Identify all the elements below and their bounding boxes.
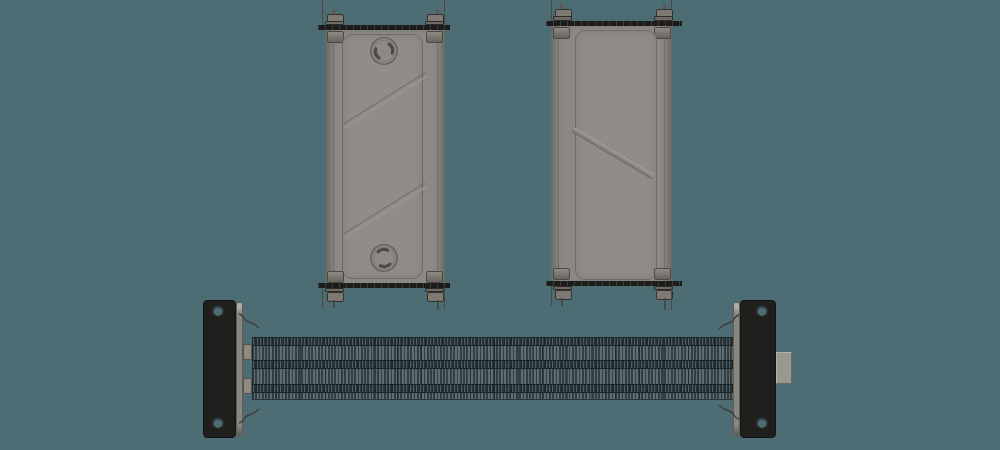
right-connector-block bbox=[776, 352, 792, 384]
front-left-edge-line bbox=[333, 30, 334, 286]
front-bottom-edge-rod-left bbox=[322, 288, 323, 308]
wire-clip-right-top bbox=[718, 314, 740, 330]
front-bottom-bolt-body-left bbox=[327, 271, 344, 283]
wire-clip-right-bottom bbox=[718, 404, 740, 420]
back-bottom-nut-left bbox=[555, 290, 572, 300]
back-bottom-stud-left bbox=[561, 298, 563, 306]
front-bottom-edge-rod-right bbox=[444, 288, 445, 310]
back-top-bolt-body-left bbox=[553, 27, 570, 39]
louver-band-top bbox=[252, 337, 733, 346]
louver-band-bottom bbox=[252, 384, 733, 393]
right-flange-hole-bottom bbox=[757, 418, 767, 428]
fin-core bbox=[252, 337, 733, 400]
front-bottom-stud-left bbox=[333, 300, 335, 308]
wire-clip-left-top bbox=[238, 313, 260, 329]
front-bottom-nut-right bbox=[427, 292, 444, 302]
back-bottom-bolt-body-left bbox=[553, 268, 570, 280]
back-left-edge-line bbox=[558, 26, 559, 282]
front-top-edge-rod-left bbox=[322, 0, 323, 25]
wire-clip-left-bottom bbox=[238, 408, 260, 424]
back-top-edge-rod-left bbox=[551, 0, 552, 23]
back-bottom-edge-rod-left bbox=[551, 286, 552, 306]
right-flange-hole-top bbox=[757, 306, 767, 316]
front-top-edge-rod-right bbox=[444, 0, 445, 25]
cad-render-scene bbox=[0, 0, 1000, 450]
front-top-bolt-body-right bbox=[426, 31, 443, 43]
back-bottom-bolt-body-right bbox=[654, 268, 671, 280]
front-bottom-stud-right bbox=[437, 300, 439, 310]
front-bottom-port bbox=[369, 243, 399, 273]
back-bottom-stud-right bbox=[664, 298, 666, 310]
back-bottom-edge-rod-right bbox=[671, 286, 672, 310]
front-bottom-bolt-body-right bbox=[426, 271, 443, 283]
back-right-edge-line bbox=[664, 26, 665, 282]
louver-band-middle bbox=[252, 360, 733, 369]
left-flange-hole-bottom bbox=[213, 418, 223, 428]
left-port-stub-top bbox=[243, 344, 252, 360]
right-mounting-flange bbox=[740, 300, 776, 438]
left-flange-hole-top bbox=[213, 306, 223, 316]
front-bottom-nut-left bbox=[327, 292, 344, 302]
left-port-stub-bottom bbox=[243, 378, 252, 394]
front-right-edge-line bbox=[437, 30, 438, 286]
front-top-port bbox=[369, 36, 399, 66]
